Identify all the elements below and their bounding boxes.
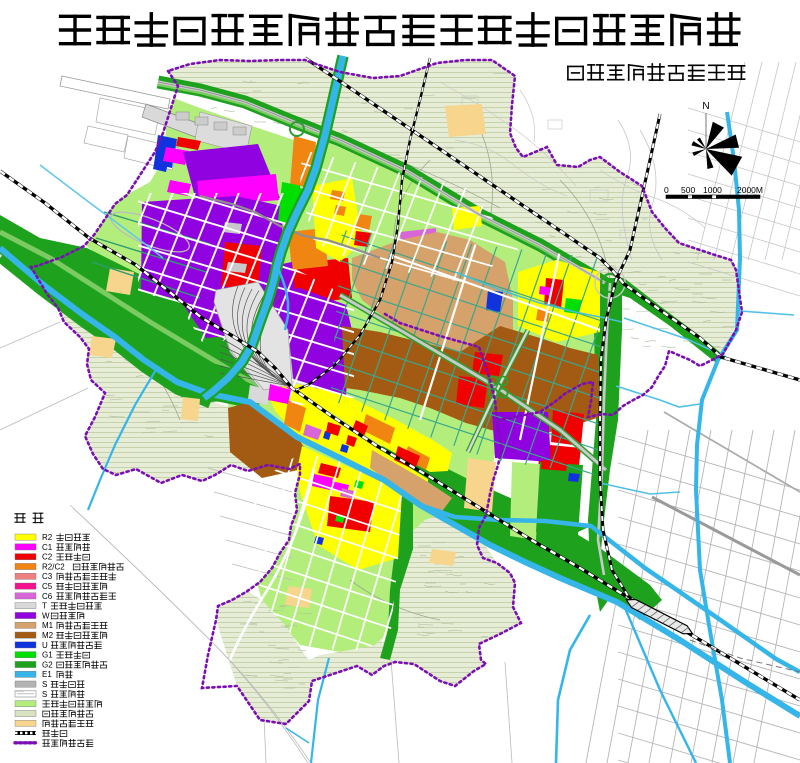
svg-text:0: 0: [664, 185, 669, 195]
svg-text:C2: C2: [42, 553, 53, 562]
svg-text:C5: C5: [42, 582, 53, 591]
svg-text:1000: 1000: [703, 185, 722, 195]
svg-text:W: W: [42, 611, 50, 620]
svg-text:R2/C2: R2/C2: [42, 562, 65, 571]
svg-text:R2: R2: [42, 533, 53, 542]
svg-text:C1: C1: [42, 543, 53, 552]
svg-text:2000M: 2000M: [737, 185, 763, 195]
svg-text:C6: C6: [42, 592, 53, 601]
svg-text:M1: M1: [42, 621, 54, 630]
svg-text:N: N: [702, 101, 709, 112]
svg-text:S: S: [42, 680, 47, 689]
svg-text:U: U: [42, 641, 48, 650]
svg-text:G1: G1: [42, 651, 53, 660]
svg-text:S: S: [42, 690, 47, 699]
svg-text:G2: G2: [42, 660, 53, 669]
svg-text:500: 500: [681, 185, 695, 195]
svg-text:M2: M2: [42, 631, 54, 640]
svg-text:T: T: [42, 602, 47, 611]
svg-text:C3: C3: [42, 572, 53, 581]
svg-text:E1: E1: [42, 670, 52, 679]
